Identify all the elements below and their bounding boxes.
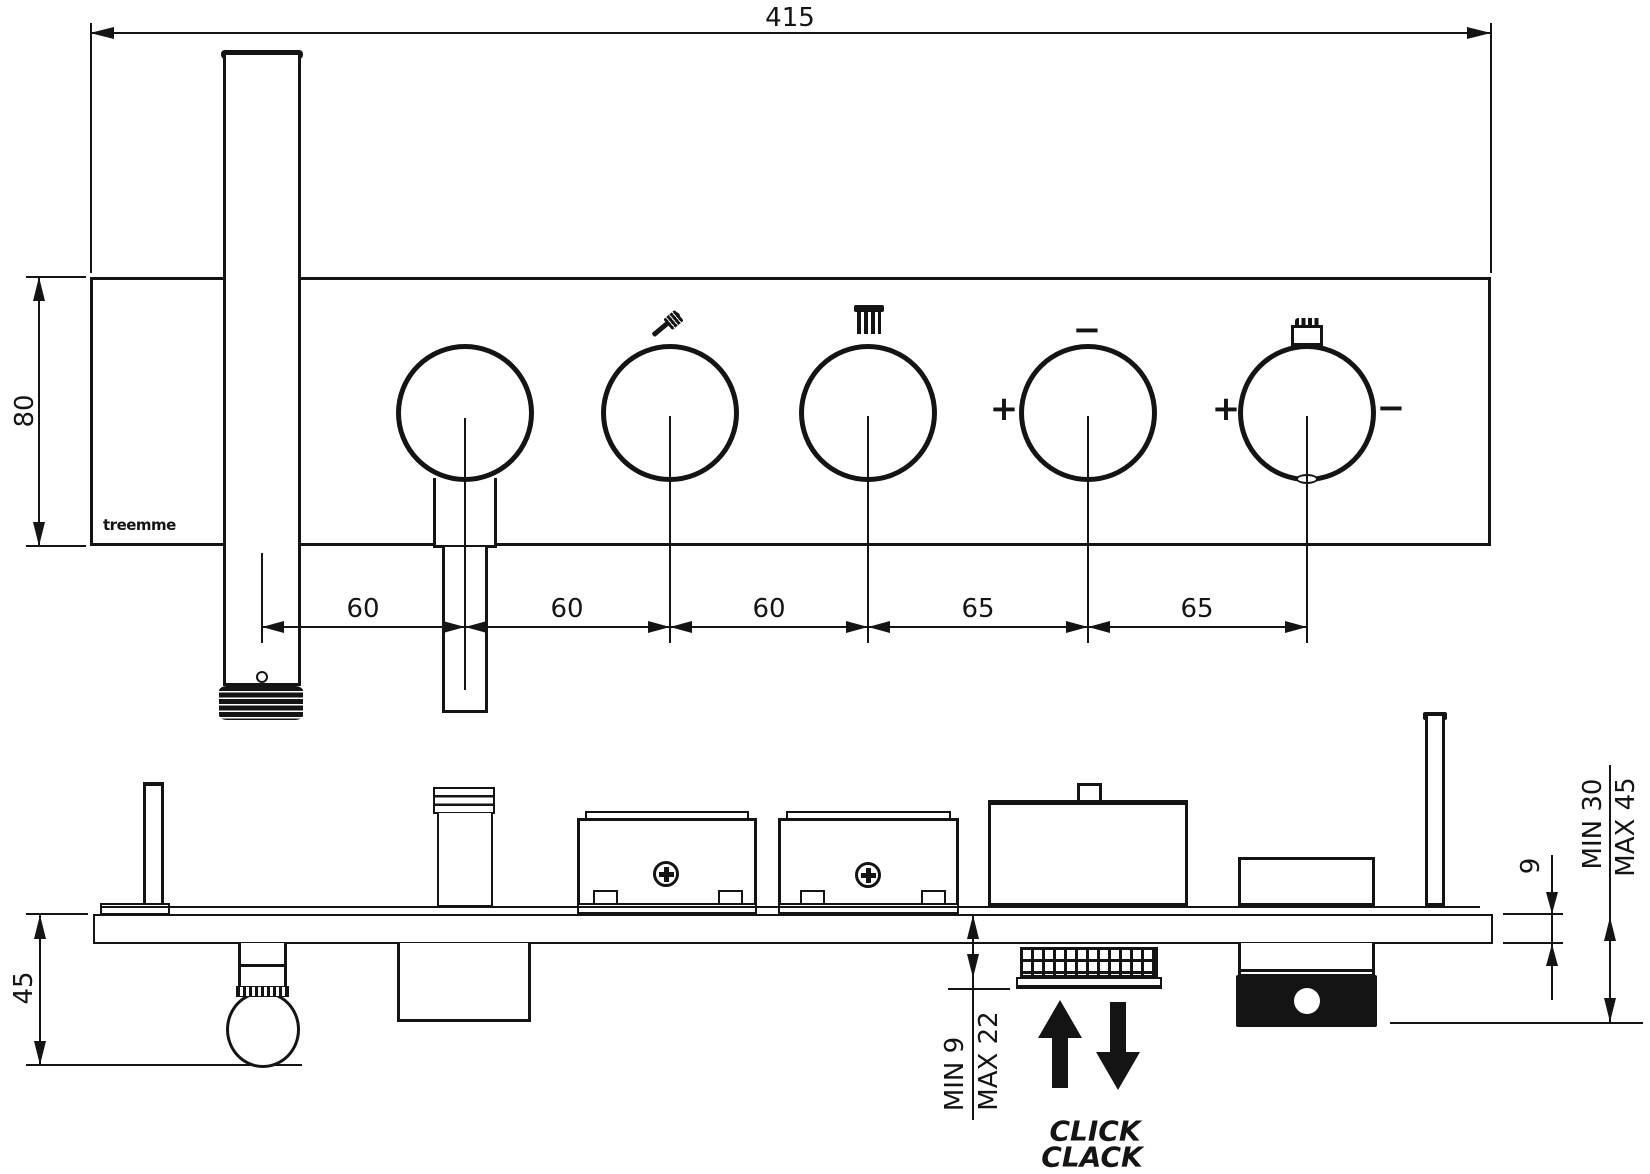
waste-body-line: [1238, 969, 1375, 972]
dim-arrow: [443, 621, 465, 633]
arrow-down-icon: [1096, 1052, 1140, 1090]
rainhead-icon-body: [857, 312, 881, 334]
side-handle-rings: [433, 787, 495, 814]
dim-415-arrow-right: [1467, 27, 1491, 39]
arrow-up-icon: [1038, 1000, 1082, 1038]
knob3-centerline: [867, 416, 869, 643]
dim-45-arrow-bottom: [34, 1041, 46, 1065]
dim-9-arrow-down: [1546, 892, 1558, 914]
screw-icon: [855, 862, 881, 888]
knob5-plus-icon: +: [1212, 389, 1241, 429]
rainhead-icon-bar: [854, 305, 884, 312]
dim-65-label-2: 65: [1180, 594, 1213, 624]
side-pin-right: [1425, 716, 1445, 906]
dim-min30-label: MIN 30: [1578, 779, 1608, 870]
dim-415-ext-right: [1490, 23, 1492, 273]
dim-max22-label: MAX 22: [974, 1011, 1004, 1110]
dim-arrow: [1285, 621, 1307, 633]
waste-drain-hole: [1294, 988, 1320, 1014]
dim-415-ext-left: [90, 23, 92, 273]
dim-arrow: [1088, 621, 1110, 633]
dim-9-label: 9: [1516, 858, 1546, 875]
dim-arrow: [648, 621, 670, 633]
dim-60-label-2: 60: [550, 594, 583, 624]
dim-spacing-line: [262, 626, 1307, 628]
dim-60-label-3: 60: [752, 594, 785, 624]
screw-slot-v: [866, 868, 871, 883]
knob5-centerline: [1306, 416, 1308, 643]
dim-projection-arrow-top: [1604, 917, 1616, 941]
socket-knurl-band: [236, 986, 289, 997]
clack-label: CLACK: [1041, 1141, 1142, 1174]
screw-icon: [653, 861, 679, 887]
knob4-centerline: [1087, 416, 1089, 643]
socket-stem-joint-line: [238, 964, 287, 967]
dim-60-label-1: 60: [346, 594, 379, 624]
knob4-minus-icon: −: [1073, 310, 1102, 350]
mounting-plate-bar: [93, 914, 1493, 944]
dim-travel-arrow-top: [967, 915, 979, 939]
arrow-up-shaft: [1052, 1036, 1068, 1088]
dim-projection-ext: [1390, 1022, 1643, 1024]
dim-80-label: 80: [10, 394, 40, 427]
dim-9-arrow-up: [1546, 944, 1558, 966]
brand-logo: treemme: [103, 516, 176, 534]
dim-arrow: [868, 621, 890, 633]
dim-415-arrow-left: [90, 27, 114, 39]
dim-arrow: [262, 621, 284, 633]
dim-arrow: [846, 621, 868, 633]
handshower-socket-stem: [238, 943, 287, 991]
dim-80-arrow-top: [33, 277, 45, 301]
clickclack-rim: [1016, 977, 1162, 989]
side-pin-left: [143, 782, 164, 907]
dim-65-label-1: 65: [961, 594, 994, 624]
dim-travel-tick: [948, 988, 1010, 990]
wand-thread-icon: [219, 686, 303, 720]
under-plate-box: [397, 943, 531, 1022]
thermostat-body: [988, 800, 1188, 906]
knob5-minus-icon: −: [1377, 388, 1406, 428]
dim-415-label: 415: [765, 3, 815, 33]
dim-min9-label: MIN 9: [940, 1037, 970, 1111]
dim-45-label: 45: [9, 971, 39, 1004]
wand-outlet-dot: [256, 671, 268, 683]
knob4-plus-icon: +: [990, 389, 1019, 429]
knob1-centerline: [464, 418, 466, 690]
screw-slot-v: [664, 867, 669, 882]
dim-projection-arrow-bottom: [1604, 998, 1616, 1022]
side-box-right: [1238, 857, 1375, 906]
dim-80-arrow-bottom: [33, 522, 45, 546]
dim-9-line: [1551, 855, 1553, 1000]
waste-body: [1238, 943, 1375, 977]
dim-arrow: [1066, 621, 1088, 633]
dim-max45-label: MAX 45: [1611, 777, 1641, 876]
dim-travel-arrow-bottom: [967, 954, 979, 978]
knob2-centerline: [669, 416, 671, 643]
side-handle-body: [437, 813, 493, 907]
technical-drawing: 415 80 treemme − + + −: [0, 0, 1650, 1174]
dim-arrow: [465, 621, 487, 633]
handshower-ball-joint: [226, 991, 300, 1068]
clickclack-knurl-ring: [1020, 947, 1158, 978]
arrow-down-shaft: [1110, 1002, 1126, 1054]
dim-arrow: [670, 621, 692, 633]
dim-45-arrow-top: [34, 915, 46, 939]
knob5-stem-icon: [1291, 325, 1323, 346]
